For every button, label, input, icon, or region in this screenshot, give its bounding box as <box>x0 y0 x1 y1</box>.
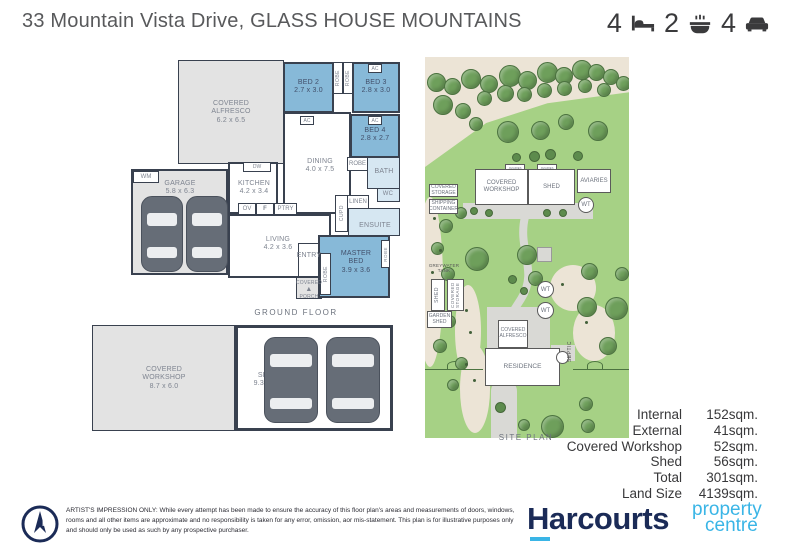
measurements-table: Internal 152sqm. External 41sqm. Covered… <box>548 407 758 502</box>
label-garage: GARAGE5.8 x 6.3 <box>154 180 206 197</box>
tree-icon <box>558 114 574 130</box>
disclaimer-text: ARTIST'S IMPRESSION ONLY: While every at… <box>66 506 518 535</box>
tree-icon <box>433 339 447 353</box>
siteplan-aviaries: AVIARIES <box>577 169 611 193</box>
planting-dot <box>439 249 442 252</box>
tree-icon <box>537 83 552 98</box>
oven-cell: OV <box>238 203 256 215</box>
planting-dot <box>465 363 468 366</box>
shrub-icon <box>508 275 517 284</box>
water-tank-2: WT <box>537 281 554 298</box>
label-wc: WC <box>379 191 397 198</box>
shrub-icon <box>559 209 567 217</box>
flyer-page: 33 Mountain Vista Drive, GLASS HOUSE MOU… <box>0 0 787 557</box>
measurement-label: Internal <box>548 407 696 423</box>
tree-icon <box>581 263 598 280</box>
fridge-cell: F <box>256 203 274 215</box>
property-stats: 4 2 4 <box>607 8 769 39</box>
tree-icon <box>431 242 444 255</box>
water-tank-3: WT <box>537 302 554 319</box>
measurement-row: External 41sqm. <box>548 423 758 439</box>
tree-icon <box>427 73 446 92</box>
shrub-icon <box>543 209 551 217</box>
tree-icon <box>616 76 629 91</box>
car-shed-2 <box>326 337 380 423</box>
tree-icon <box>439 219 453 233</box>
label-bed4: BED 42.8 x 2.7 <box>350 127 400 144</box>
bed-icon <box>631 13 655 35</box>
bath-icon <box>688 13 712 35</box>
label-septic: SEPTIC <box>565 341 575 364</box>
tree-icon <box>615 267 629 281</box>
siteplan-garden-shed: GARDENSHED <box>427 311 452 328</box>
bath-count: 2 <box>664 8 679 39</box>
cupboard: CUPD <box>335 195 348 232</box>
pantry-cell: PTRY <box>274 203 297 215</box>
harcourts-logo: Harcourts property centre <box>527 499 777 551</box>
tree-icon <box>517 87 532 102</box>
brand-underline <box>530 537 550 541</box>
small-structure <box>537 247 552 262</box>
tree-icon <box>531 121 550 140</box>
measurement-value: 56sqm. <box>696 454 758 470</box>
tree-icon <box>497 85 514 102</box>
tree-icon <box>455 103 471 119</box>
site-plan: AVIARIES AVIARIES COVEREDWORKSHOP SHED A… <box>425 57 629 438</box>
tree-icon <box>517 245 537 265</box>
compass-north-icon: N <box>20 504 60 544</box>
label-covered-workshop: COVEREDWORKSHOP8.7 x 6.0 <box>133 366 195 391</box>
tree-icon <box>518 419 530 431</box>
label-bath: BATH <box>371 168 397 176</box>
brand-tagline: property centre <box>692 502 762 534</box>
bed-count: 4 <box>607 8 622 39</box>
tree-icon <box>433 95 453 115</box>
shrub-icon <box>573 151 583 161</box>
ac-unit-1: AC <box>300 116 314 125</box>
car-garage-1 <box>141 196 183 272</box>
siteplan-residence: RESIDENCE <box>485 348 560 386</box>
measurement-row: Internal 152sqm. <box>548 407 758 423</box>
tree-icon <box>477 91 492 106</box>
tree-icon <box>497 121 519 143</box>
label-ground-floor: GROUND FLOOR <box>240 308 352 317</box>
tree-icon <box>599 337 617 355</box>
label-ensuite: ENSUITE <box>352 222 398 230</box>
planting-dot <box>473 379 476 382</box>
shrub-icon <box>512 153 521 162</box>
tree-icon <box>605 297 628 320</box>
measurement-label: Total <box>548 470 696 486</box>
linen-cupboard: LINEN <box>347 195 369 209</box>
robe-master-right: ROBE <box>381 240 390 268</box>
tree-icon <box>578 79 592 93</box>
tree-icon <box>588 121 608 141</box>
robe-bath: ROBE <box>347 157 368 171</box>
planting-dot <box>465 309 468 312</box>
siteplan-small-shed: SHED <box>431 279 445 311</box>
label-entry: ENTRY <box>292 252 326 260</box>
brand-name: Harcourts <box>527 501 669 537</box>
siteplan-shipping-container: SHIPPINGCONTAINER <box>429 199 458 214</box>
car-garage-2 <box>186 196 228 272</box>
tree-icon <box>469 117 483 131</box>
label-living: LIVING4.2 x 3.6 <box>252 236 304 253</box>
label-porch: COVERED▲PORCH <box>294 280 324 300</box>
label-alfresco: COVEREDALFRESCO6.2 x 6.5 <box>193 100 269 125</box>
measurement-row: Total 301sqm. <box>548 470 758 486</box>
car-count: 4 <box>721 8 736 39</box>
shrub-icon <box>520 287 528 295</box>
tree-icon <box>557 81 572 96</box>
car-icon <box>745 13 769 35</box>
dishwasher-cell: DW <box>243 162 271 172</box>
robe-bed2: ROBE <box>333 62 343 94</box>
measurement-label: External <box>548 423 696 439</box>
label-greywater-tank: GREYWATER TANK <box>425 263 463 274</box>
ac-unit-3: AC <box>368 116 382 125</box>
planting-dot <box>433 217 436 220</box>
measurement-label: Covered Workshop <box>548 439 696 455</box>
measurement-value: 41sqm. <box>696 423 758 439</box>
label-bed2: BED 22.7 x 3.0 <box>283 79 334 96</box>
shrub-icon <box>470 207 478 215</box>
siteplan-covered-alfresco: COVEREDALFRESCO <box>498 320 528 348</box>
planting-dot <box>469 331 472 334</box>
tree-icon <box>465 247 489 271</box>
car-shed-1 <box>264 337 318 423</box>
measurement-value: 301sqm. <box>696 470 758 486</box>
measurement-label: Shed <box>548 454 696 470</box>
tree-icon <box>447 379 459 391</box>
tree-icon <box>444 78 461 95</box>
ac-unit-2: AC <box>368 64 382 73</box>
label-master-bed: MASTERBED3.9 x 3.6 <box>330 250 382 275</box>
shrub-icon <box>485 209 493 217</box>
planting-dot <box>585 321 588 324</box>
siteplan-covered-storage-2: COVERED STORAGE <box>447 279 464 311</box>
fence-gate-right <box>587 361 603 370</box>
page-title: 33 Mountain Vista Drive, GLASS HOUSE MOU… <box>22 10 522 33</box>
tree-icon <box>597 83 611 97</box>
tree-icon <box>577 297 597 317</box>
svg-text:N: N <box>42 518 49 528</box>
siteplan-covered-workshop: COVEREDWORKSHOP <box>475 169 528 205</box>
tree-icon <box>461 69 481 89</box>
label-kitchen: KITCHEN4.2 x 3.4 <box>232 180 276 197</box>
label-bed3: BED 32.8 x 3.0 <box>352 79 400 96</box>
siteplan-covered-storage: COVEREDSTORAGE <box>429 184 458 197</box>
water-tank-1: WT <box>578 197 594 213</box>
measurement-row: Shed 56sqm. <box>548 454 758 470</box>
shrub-icon <box>529 151 540 162</box>
shrub-icon <box>545 149 556 160</box>
label-dining: DINING4.0 x 7.5 <box>296 158 344 175</box>
measurement-value: 52sqm. <box>696 439 758 455</box>
planting-dot <box>561 283 564 286</box>
measurement-row: Covered Workshop 52sqm. <box>548 439 758 455</box>
shrub-icon <box>495 402 506 413</box>
siteplan-shed: SHED <box>528 169 575 205</box>
measurement-value: 152sqm. <box>696 407 758 423</box>
